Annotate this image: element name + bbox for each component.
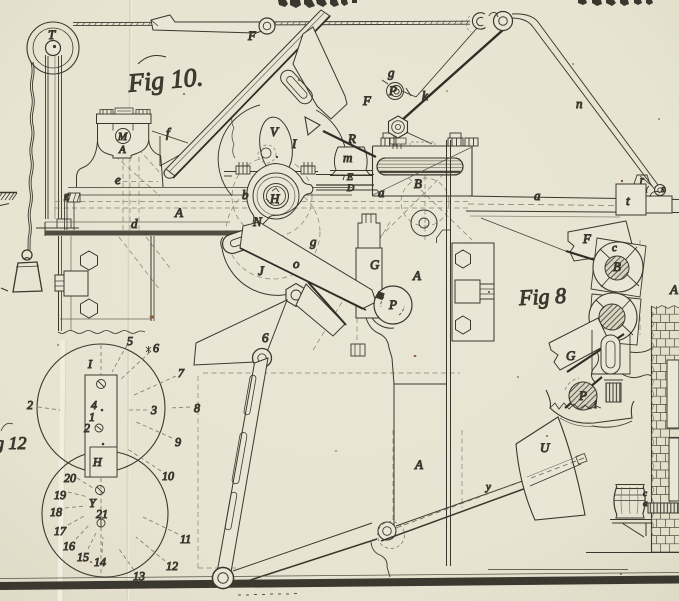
svg-text:G: G	[566, 348, 576, 363]
svg-text:s: s	[661, 184, 665, 195]
svg-text:k: k	[422, 88, 428, 103]
svg-text:a: a	[643, 498, 648, 508]
svg-text:F: F	[247, 28, 257, 43]
svg-text:i: i	[594, 399, 597, 411]
svg-text:B: B	[613, 259, 621, 274]
svg-text:A: A	[414, 457, 423, 472]
svg-text:a: a	[378, 185, 385, 200]
svg-text:11: 11	[180, 532, 191, 546]
svg-text:6: 6	[262, 330, 269, 345]
svg-text:P: P	[388, 83, 397, 98]
svg-text:A: A	[412, 268, 421, 283]
svg-text:r: r	[640, 175, 644, 186]
svg-text:20: 20	[64, 471, 76, 485]
svg-text:e: e	[115, 172, 121, 187]
svg-text:10: 10	[162, 469, 174, 483]
svg-text:3: 3	[150, 403, 157, 417]
svg-text:21: 21	[96, 507, 108, 521]
svg-text:g: g	[310, 234, 317, 249]
svg-text:E: E	[346, 172, 353, 183]
svg-text:Fig 8: Fig 8	[517, 283, 566, 310]
svg-text:c: c	[612, 242, 617, 254]
svg-text:2: 2	[27, 398, 33, 412]
svg-text:g: g	[388, 65, 395, 80]
svg-text:n: n	[576, 96, 583, 111]
svg-text:A: A	[669, 282, 678, 297]
svg-text:H: H	[92, 455, 103, 469]
svg-text:a: a	[534, 188, 541, 203]
svg-text:G: G	[370, 257, 380, 272]
svg-text:o: o	[293, 256, 300, 271]
svg-text:19: 19	[54, 488, 66, 502]
svg-text:g 12: g 12	[0, 433, 27, 453]
svg-text:I: I	[291, 136, 297, 151]
svg-text:E: E	[63, 192, 70, 202]
svg-text:2: 2	[84, 421, 90, 435]
svg-text:18: 18	[50, 505, 62, 519]
svg-text:m: m	[343, 150, 352, 165]
svg-text:R: R	[347, 131, 356, 146]
svg-text:9: 9	[175, 435, 181, 449]
svg-text:12: 12	[166, 559, 178, 573]
svg-text:P: P	[388, 297, 397, 312]
svg-text:17: 17	[54, 524, 67, 538]
svg-text:T: T	[48, 27, 56, 42]
svg-text:d: d	[131, 216, 138, 231]
svg-text:b: b	[242, 187, 249, 202]
svg-text:B: B	[414, 176, 422, 191]
svg-text:7: 7	[178, 366, 185, 380]
svg-text:6: 6	[153, 341, 159, 355]
svg-text:c: c	[643, 488, 647, 498]
svg-text:8: 8	[194, 401, 200, 415]
svg-text:P: P	[578, 388, 587, 403]
svg-text:H: H	[269, 191, 280, 206]
svg-text:N: N	[252, 214, 263, 229]
svg-text:M: M	[117, 131, 128, 143]
svg-text:F: F	[362, 93, 372, 108]
svg-text:15: 15	[77, 550, 89, 564]
svg-text:14: 14	[94, 555, 106, 569]
svg-text:5: 5	[127, 334, 133, 348]
svg-text:y: y	[485, 481, 491, 493]
svg-text:A: A	[118, 144, 126, 156]
svg-text:F: F	[582, 231, 592, 246]
svg-text:A: A	[174, 205, 183, 220]
svg-text:D: D	[346, 183, 355, 194]
svg-text:U: U	[540, 440, 551, 455]
svg-text:t: t	[626, 193, 630, 208]
svg-text:16: 16	[63, 539, 75, 553]
